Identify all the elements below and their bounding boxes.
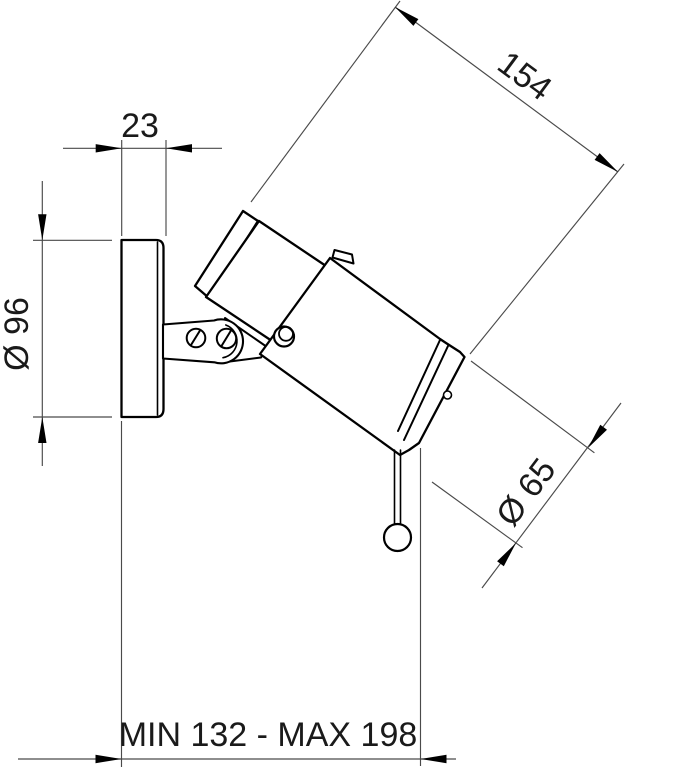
dimension-wall-extension: MIN 132 - MAX 198: [18, 421, 456, 767]
arrowhead: [166, 144, 192, 152]
dimension-line: [395, 7, 618, 172]
arrowhead: [38, 417, 46, 443]
mounting-bracket: [163, 319, 243, 363]
arrowhead: [96, 755, 122, 763]
cord-ball: [384, 524, 411, 551]
arrowhead: [421, 755, 447, 763]
dimension-plate-depth: 23: [63, 107, 222, 236]
dimension-label: 23: [121, 107, 159, 145]
extension-line: [251, 1, 400, 202]
arrowhead: [96, 144, 122, 152]
arrowhead: [395, 7, 418, 26]
arrowhead: [588, 425, 607, 448]
pull-cord: [384, 450, 411, 551]
dimension-label: 154: [490, 44, 558, 108]
cable-hole: [444, 391, 452, 399]
arrowhead: [497, 543, 516, 566]
wall-plate: [122, 240, 164, 417]
extension-line: [470, 164, 624, 354]
extension-line: [471, 361, 594, 453]
dimension-label: MIN 132 - MAX 198: [119, 716, 418, 754]
dimension-label: Ø 65: [489, 452, 564, 534]
arrowhead: [595, 153, 618, 172]
technical-drawing-page: 23 Ø 96 154 Ø 65 MIN 132 - MAX 198: [0, 0, 691, 768]
dimension-label: Ø 96: [0, 297, 36, 371]
arrowhead: [38, 214, 46, 240]
spotlight-dimension-drawing: 23 Ø 96 154 Ø 65 MIN 132 - MAX 198: [0, 0, 691, 768]
dimension-body-diameter: Ø 65: [432, 361, 621, 588]
dimension-plate-diameter: Ø 96: [0, 181, 112, 466]
